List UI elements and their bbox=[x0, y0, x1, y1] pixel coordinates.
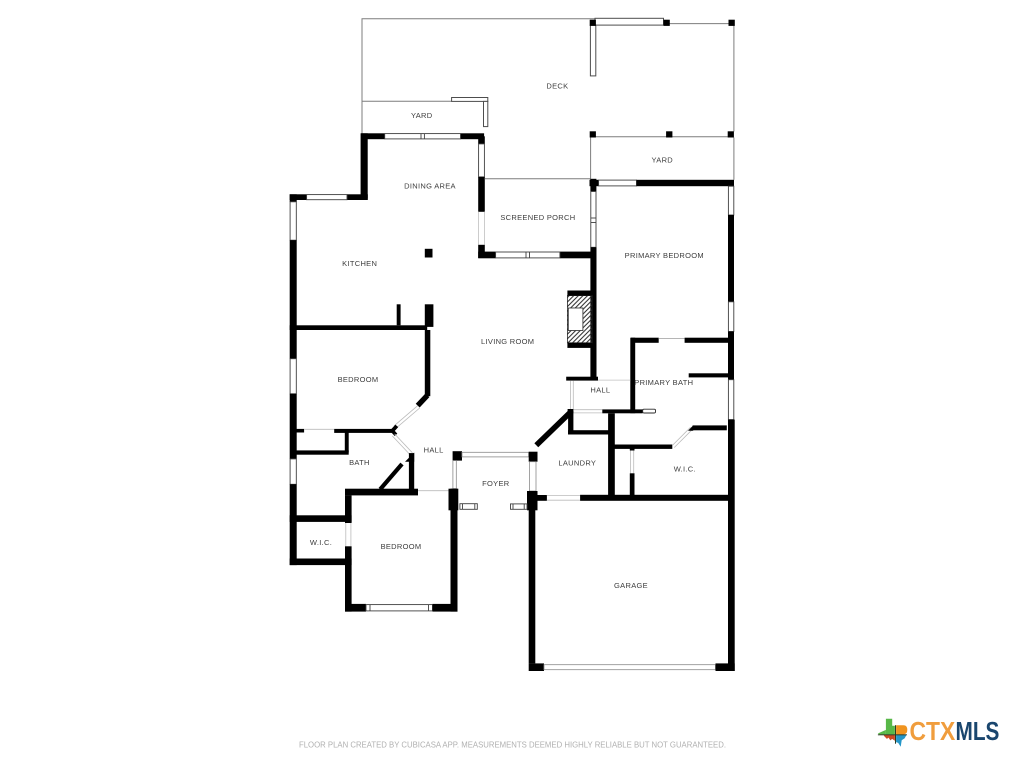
svg-text:BEDROOM: BEDROOM bbox=[381, 542, 422, 551]
svg-text:MLS: MLS bbox=[956, 717, 1000, 746]
svg-text:GARAGE: GARAGE bbox=[614, 581, 648, 590]
svg-text:YARD: YARD bbox=[652, 155, 674, 164]
svg-text:PRIMARY BATH: PRIMARY BATH bbox=[634, 378, 693, 387]
svg-text:KITCHEN: KITCHEN bbox=[342, 259, 377, 268]
svg-text:DINING AREA: DINING AREA bbox=[404, 181, 456, 190]
svg-text:DECK: DECK bbox=[546, 82, 568, 91]
svg-text:FLOOR PLAN CREATED BY CUBICASA: FLOOR PLAN CREATED BY CUBICASA APP. MEAS… bbox=[299, 740, 726, 750]
svg-text:HALL: HALL bbox=[424, 445, 444, 454]
svg-text:W.I.C.: W.I.C. bbox=[310, 538, 332, 547]
svg-text:LIVING ROOM: LIVING ROOM bbox=[481, 337, 534, 346]
svg-text:HALL: HALL bbox=[590, 386, 610, 395]
svg-text:CTX: CTX bbox=[910, 718, 956, 747]
svg-text:LAUNDRY: LAUNDRY bbox=[558, 459, 596, 468]
svg-text:W.I.C.: W.I.C. bbox=[674, 464, 696, 473]
svg-text:BATH: BATH bbox=[349, 458, 370, 467]
svg-text:SCREENED PORCH: SCREENED PORCH bbox=[500, 213, 575, 222]
svg-text:BEDROOM: BEDROOM bbox=[338, 375, 379, 384]
svg-text:YARD: YARD bbox=[411, 111, 433, 120]
svg-text:FOYER: FOYER bbox=[482, 479, 510, 488]
svg-text:PRIMARY BEDROOM: PRIMARY BEDROOM bbox=[625, 251, 704, 260]
